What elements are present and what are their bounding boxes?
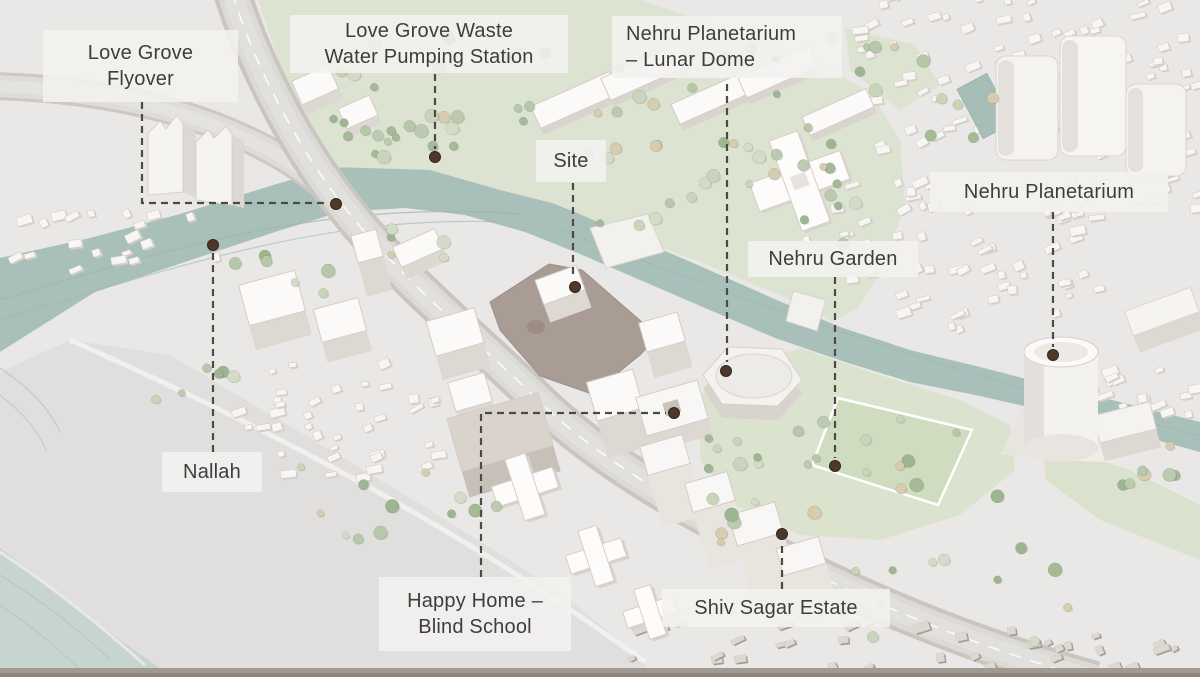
lunar-dome-building — [703, 347, 802, 420]
map-dot-love-grove-flyover — [331, 199, 342, 210]
map-dot-nehru-garden — [830, 461, 841, 472]
map-dot-love-grove-waste-water-pumping-station — [430, 152, 441, 163]
map-dot-happy-home-blind-school — [669, 408, 680, 419]
site-map-canvas: Love GroveFlyoverLove Grove WasteWater P… — [0, 0, 1200, 677]
map-artwork — [0, 0, 1200, 677]
map-dot-nehru-planetarium-lunar-dome — [721, 366, 732, 377]
map-dot-nallah — [208, 240, 219, 251]
map-dot-nehru-planetarium — [1048, 350, 1059, 361]
map-dot-site — [570, 282, 581, 293]
map-dot-shiv-sagar-estate — [777, 529, 788, 540]
bottom-edge-strip — [0, 668, 1200, 677]
